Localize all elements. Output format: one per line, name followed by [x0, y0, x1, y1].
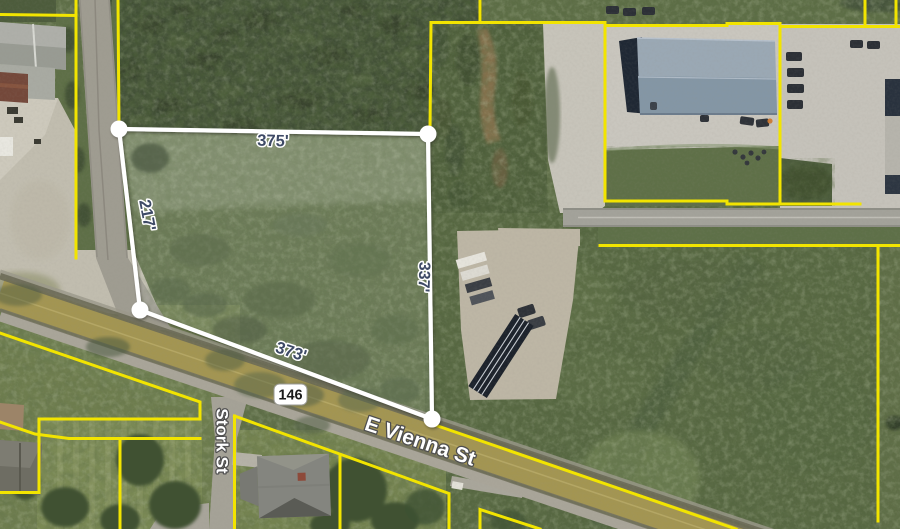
- svg-text:146: 146: [278, 388, 302, 404]
- svg-text:375': 375': [257, 132, 289, 151]
- svg-text:Stork St: Stork St: [213, 408, 232, 474]
- svg-text:337': 337': [414, 261, 432, 292]
